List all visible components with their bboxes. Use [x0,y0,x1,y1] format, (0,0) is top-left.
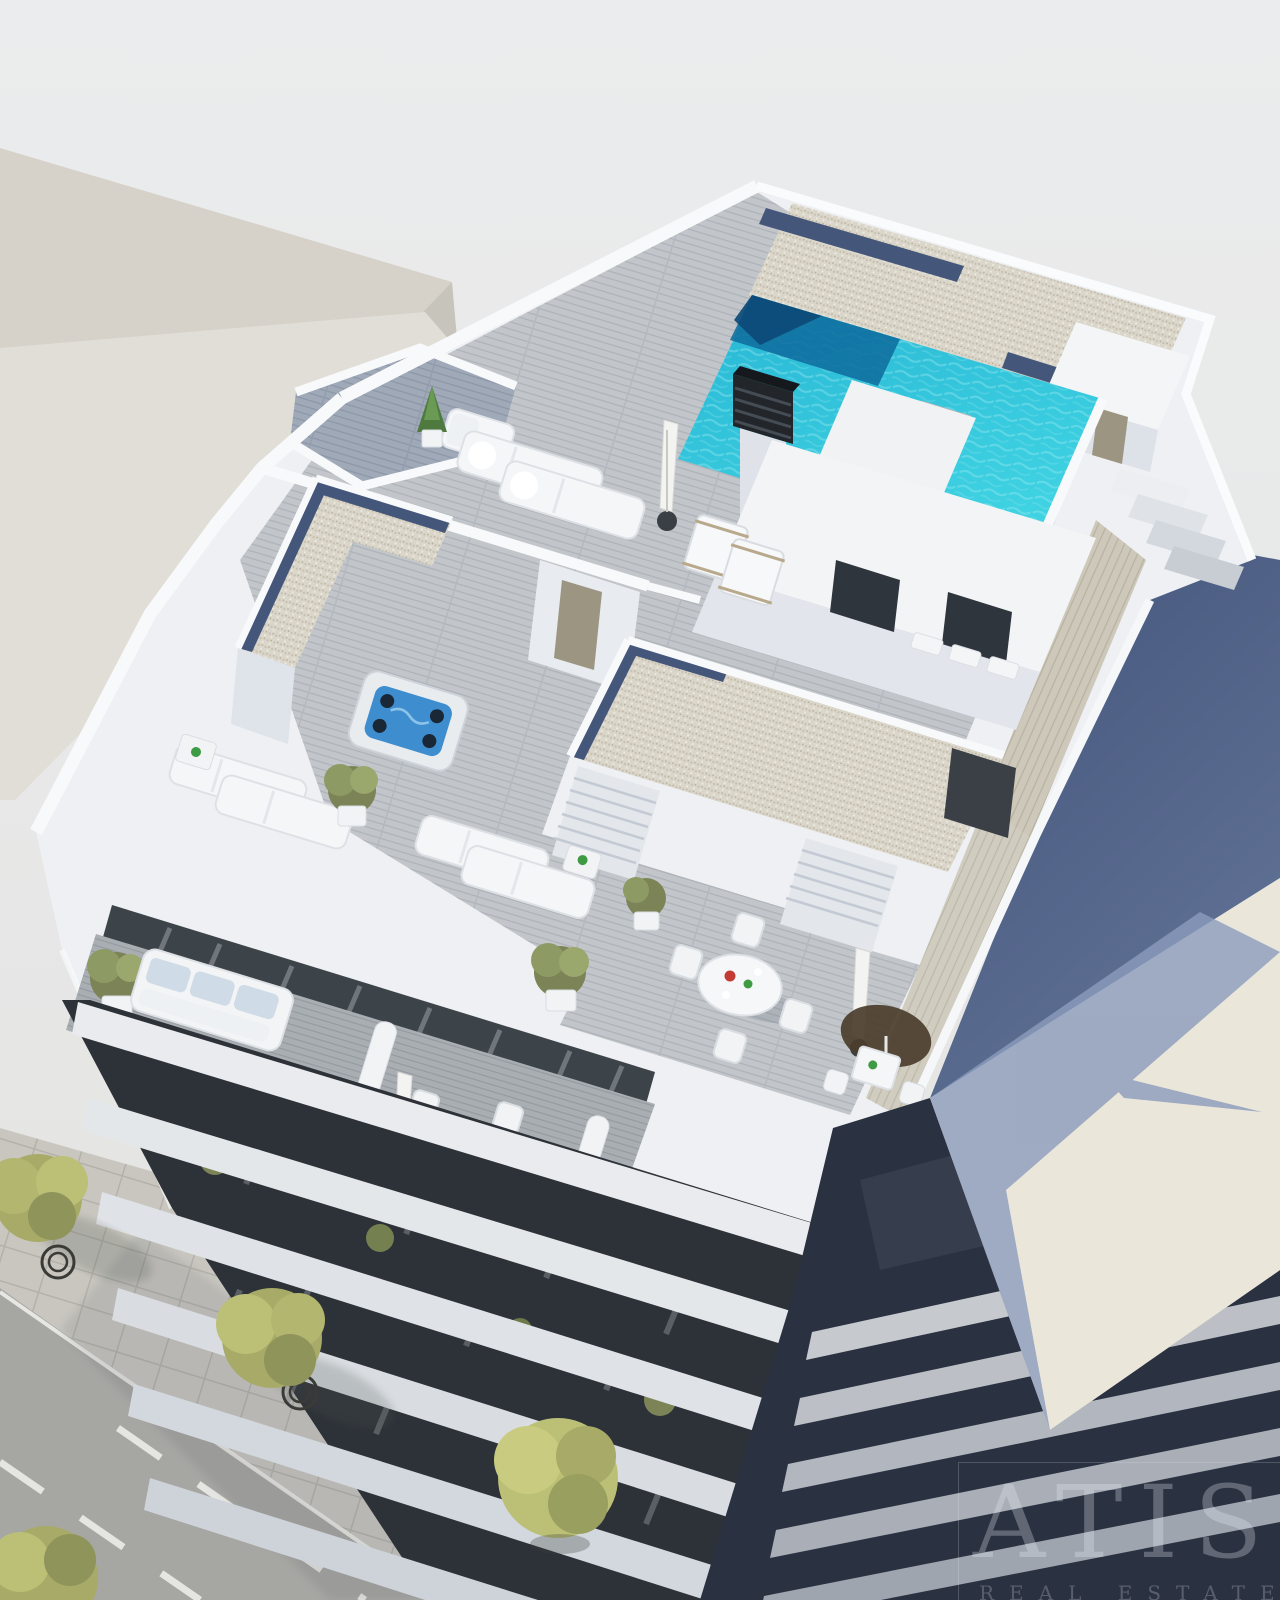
aerial-render [0,0,1280,1600]
plate-red [725,971,736,982]
cup [754,968,762,976]
render-canvas: ATISÚ REAL ESTATE [0,0,1280,1600]
terrace-door [554,580,602,670]
plate-green [744,980,753,989]
cup [722,991,730,999]
